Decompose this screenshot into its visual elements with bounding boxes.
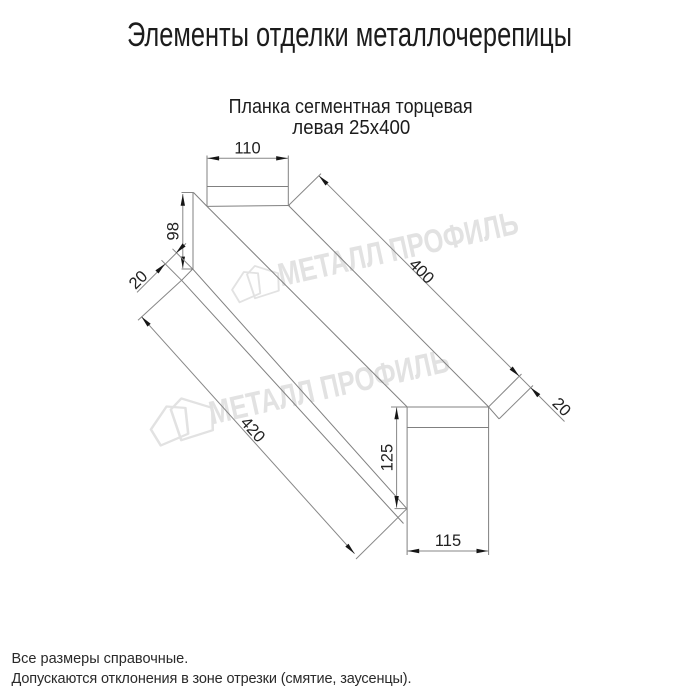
svg-text:Элементы отделки металлочерепи: Элементы отделки металлочерепицы — [127, 16, 572, 54]
svg-text:левая 25х400: левая 25х400 — [292, 116, 410, 139]
svg-text:110: 110 — [234, 140, 260, 158]
svg-text:Планка сегментная торцевая: Планка сегментная торцевая — [229, 95, 473, 118]
svg-text:Допускаются отклонения в зоне: Допускаются отклонения в зоне отрезки (с… — [12, 671, 412, 687]
svg-text:98: 98 — [164, 222, 182, 240]
svg-text:125: 125 — [378, 444, 396, 472]
svg-text:Все размеры справочные.: Все размеры справочные. — [12, 651, 189, 667]
svg-text:115: 115 — [435, 532, 461, 550]
